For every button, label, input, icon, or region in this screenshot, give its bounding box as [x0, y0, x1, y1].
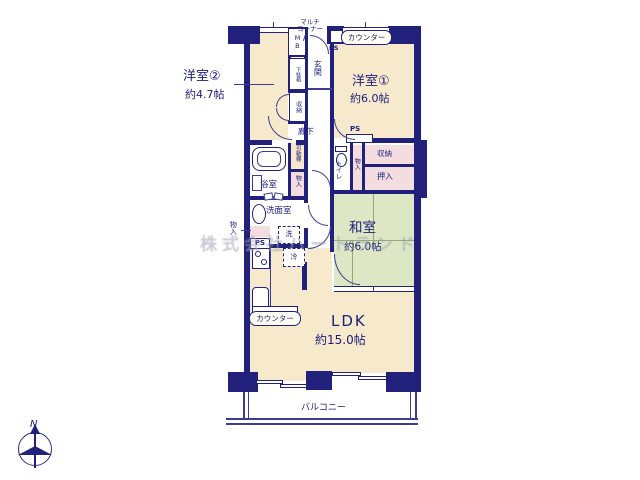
counter-top-text: カウンター: [348, 32, 386, 43]
compass-arrowhead: [30, 424, 40, 434]
toilet-storage-label: 物入: [353, 158, 359, 170]
counter-top-label: カウンター: [341, 30, 392, 45]
ps-top-label: PS: [329, 45, 338, 52]
pier-bottom-center: [306, 371, 332, 390]
washroom-sink: [252, 204, 266, 224]
wall-shelf-storage: [288, 169, 306, 172]
hall-closet-label: 収納: [294, 101, 300, 113]
wall-japanese-top: [330, 190, 414, 194]
storage-column-label: 物入: [294, 175, 300, 187]
kitchen-counter-edge: [270, 248, 271, 306]
bathtub-inner: [257, 151, 281, 167]
window-top-west2: [260, 27, 288, 33]
oshiire-label: 押入: [377, 173, 393, 181]
balcony-edge-right: [415, 392, 417, 419]
pier-bottom-right: [386, 372, 421, 392]
compass-wing-right: [35, 446, 52, 455]
balcony-edge-left-inner: [248, 392, 249, 419]
movable-shelf-label: 可動棚: [294, 145, 300, 162]
balcony-rail-outer: [226, 418, 418, 420]
toilet-label: トイレ: [334, 160, 341, 180]
ldk-size: 約15.0帖: [315, 334, 366, 347]
toilet-tank: [335, 146, 347, 152]
hallway-label: 廊下: [298, 128, 314, 136]
window-tick: [365, 22, 366, 27]
watermark: 株式会社ハートランド: [200, 230, 420, 255]
balcony-label: バルコニー: [301, 404, 346, 413]
ps-mid-label: PS: [350, 126, 360, 133]
wall-right-bump: [414, 140, 427, 198]
balcony-rail-inner: [226, 423, 418, 425]
compass: N: [14, 420, 62, 472]
shoe-cabinet: 下駄箱: [289, 58, 306, 90]
balcony-window-right-b: [358, 376, 387, 380]
multi-corner-label: マルチ コーナー: [297, 19, 323, 33]
counter-kitchen-label: カウンター: [249, 311, 301, 326]
shoe-cabinet-label: 下駄箱: [295, 67, 300, 82]
japanese-closet-label: 収納: [377, 150, 392, 158]
western-room2-leader: [234, 84, 274, 85]
balcony-edge-left: [243, 392, 245, 419]
wall-under-west2-a: [250, 140, 272, 145]
bath-bifold-door: [273, 192, 283, 200]
stove-burner: [261, 259, 267, 265]
window-tick: [273, 22, 274, 27]
door-arc-washroom: [308, 205, 328, 226]
western-room2-name: 洋室②: [183, 70, 221, 84]
western-room1-size: 約6.0帖: [350, 93, 390, 105]
entrance-step: [308, 88, 332, 90]
washroom-label: 洗面室: [266, 207, 292, 216]
entrance-label: 玄関: [313, 60, 321, 76]
meter-box-label: MB: [294, 34, 301, 50]
counter-kitchen-text: カウンター: [256, 313, 294, 324]
balcony-window-left-b: [280, 384, 307, 388]
balcony-window-right-a: [332, 372, 361, 376]
multi-corner-line2: コーナー: [297, 25, 323, 33]
sliding-door-tick: [373, 286, 374, 292]
balcony-window-left-a: [256, 380, 283, 384]
western-room1-name: 洋室①: [352, 75, 390, 89]
bathroom-label: 浴室: [260, 181, 277, 190]
door-arc-toilet: [312, 170, 331, 189]
wall-right: [414, 30, 421, 390]
pier-bottom-left: [228, 372, 258, 392]
compass-wing-left: [18, 446, 35, 455]
floor-plan: MB 下駄箱 収納 PS 洗 冷: [0, 0, 640, 480]
sliding-door-japanese: [334, 286, 414, 292]
ldk-name: LDK: [331, 314, 367, 330]
balcony-edge-right-inner: [410, 392, 411, 419]
wall-closet-oshiire: [362, 164, 414, 167]
western-room2-size: 約4.7帖: [185, 89, 225, 101]
